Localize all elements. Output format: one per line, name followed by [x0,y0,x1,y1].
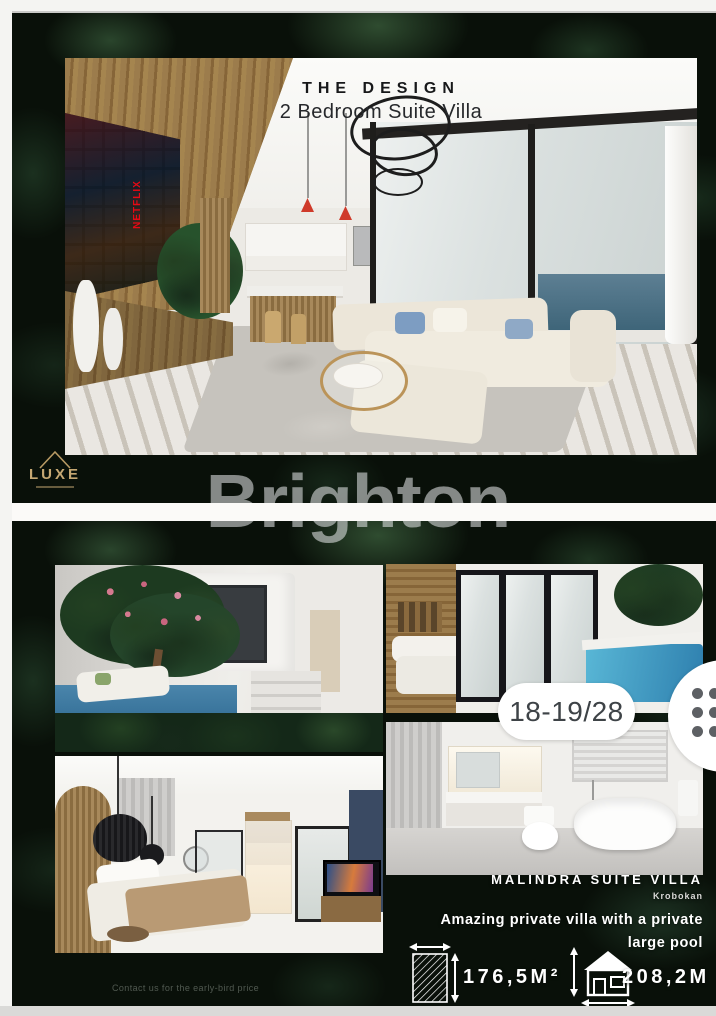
bathtub [574,798,676,850]
window-pane [506,575,544,697]
listing-location: Krobokan [273,891,703,901]
wardrobe-top [245,812,290,821]
menu-dot-icon [692,726,703,737]
design-title-block: THE DESIGN 2 Bedroom Suite Villa [65,80,697,124]
curtain [665,126,697,344]
slat-door [200,198,230,313]
land-area-icon [408,940,460,1008]
garden-fringe [55,713,383,752]
kitchen-cabinets [245,223,347,271]
design-title: THE DESIGN [65,80,697,98]
screen-bottom-margin [0,1006,716,1016]
steps [251,671,321,717]
menu-dot-icon [692,707,703,718]
niche-mirror [456,752,500,788]
page-indicator-text: 18-19/28 [509,696,624,728]
blue-pillow [505,319,533,339]
toilet-bowl [522,822,558,850]
window-pane [461,575,499,697]
gallery-frames [398,602,442,632]
ring-chandelier [373,168,423,196]
page-indicator-pill: 18-19/28 [498,683,635,740]
listing-info-block: MALINDRA SUITE VILLA Krobokan Amazing pr… [273,872,703,951]
menu-dot-icon [709,707,716,718]
white-pillow [433,308,467,332]
sofa-arm [570,310,616,382]
brighton-watermark: Brighton [0,464,716,539]
footer-note: Contact us for the early-bird price [112,983,292,993]
serving-tray [333,363,383,389]
garden-tree [614,564,703,626]
courtyard-photo [55,565,383,752]
panel-divider [12,503,716,521]
lamp-cord [117,756,119,816]
pendant-cord [345,113,347,206]
pink-flowers [90,573,225,648]
bar-stool [291,314,306,344]
screenshot-root: NETFLIX [0,0,716,1016]
listing-tagline-1: Amazing private villa with a private [273,912,703,928]
towel [678,780,698,816]
menu-dot-icon [709,688,716,699]
side-table [107,926,149,942]
bar-stool [265,311,281,343]
land-area-value: 176,5M² [463,966,561,989]
pendant-cord [307,113,309,198]
rattan-pendant-lamp [93,814,147,862]
green-pillow [95,673,111,685]
screen-top-margin [0,0,716,13]
lamp-cord [151,796,153,846]
menu-dot-icon [692,688,703,699]
vase-large [73,280,99,372]
menu-dot-icon [709,726,716,737]
bathroom-photo [386,722,703,875]
blue-pillow [395,312,425,334]
screen-left-margin [0,11,12,1006]
netflix-logo: NETFLIX [132,180,143,229]
listing-name: MALINDRA SUITE VILLA [273,872,703,887]
tub-faucet [592,780,594,800]
building-size-value: 208,2M [622,966,710,989]
interior-render-photo: NETFLIX [65,58,697,455]
design-subtitle: 2 Bedroom Suite Villa [65,101,697,124]
vase-small [103,308,123,370]
bedroom-ceiling [55,756,383,796]
